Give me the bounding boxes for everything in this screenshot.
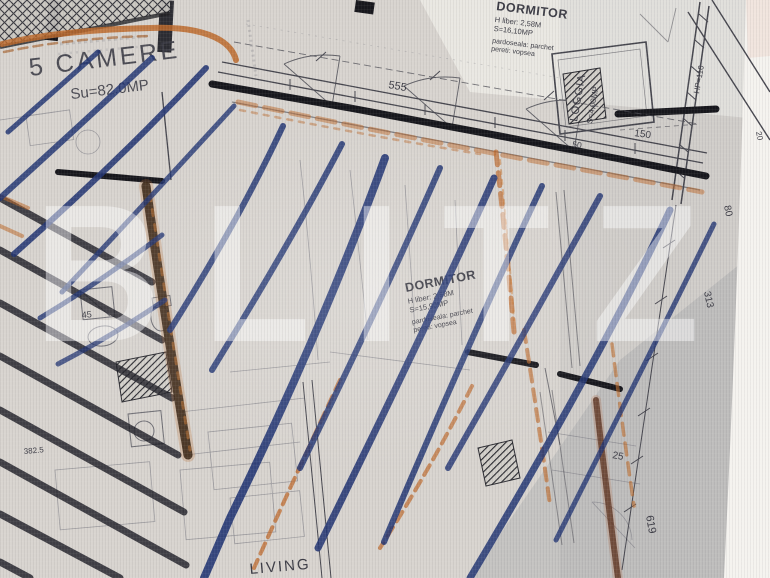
dim-382-5: 382.5 <box>23 445 44 456</box>
dim-50: 50 <box>572 139 583 150</box>
floorplan-photo: 5 CAMERE Su=82.0MP DORMITOR H liber: 2,5… <box>0 0 770 578</box>
floorplan-drawing: 5 CAMERE Su=82.0MP DORMITOR H liber: 2,5… <box>0 0 770 578</box>
dim-45: 45 <box>81 309 92 320</box>
